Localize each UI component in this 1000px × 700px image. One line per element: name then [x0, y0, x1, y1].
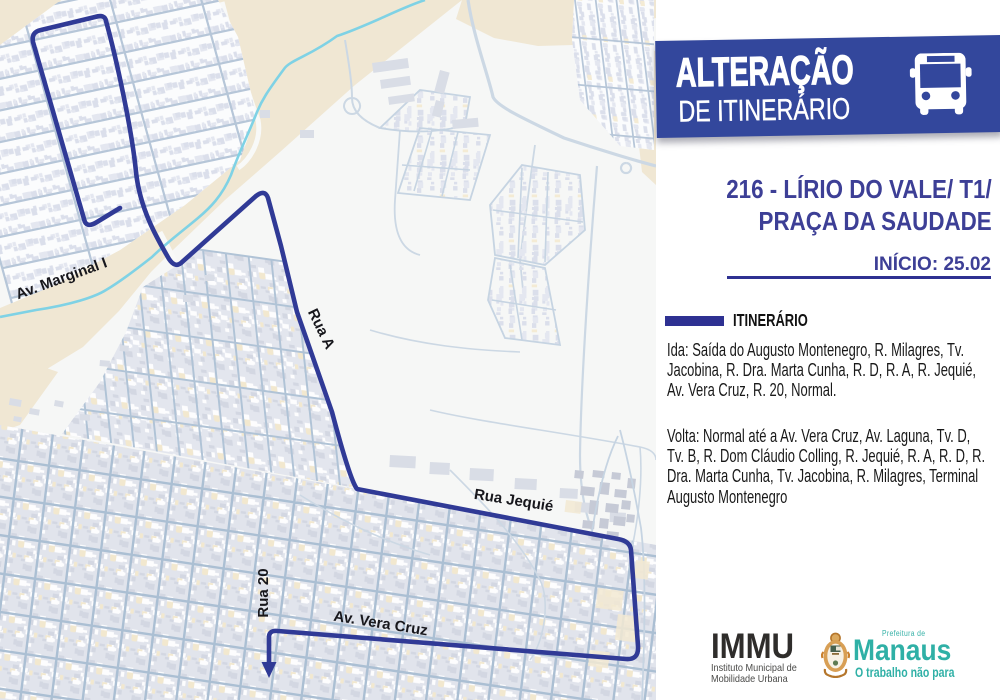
svg-text:Rua 20: Rua 20 [255, 568, 272, 617]
